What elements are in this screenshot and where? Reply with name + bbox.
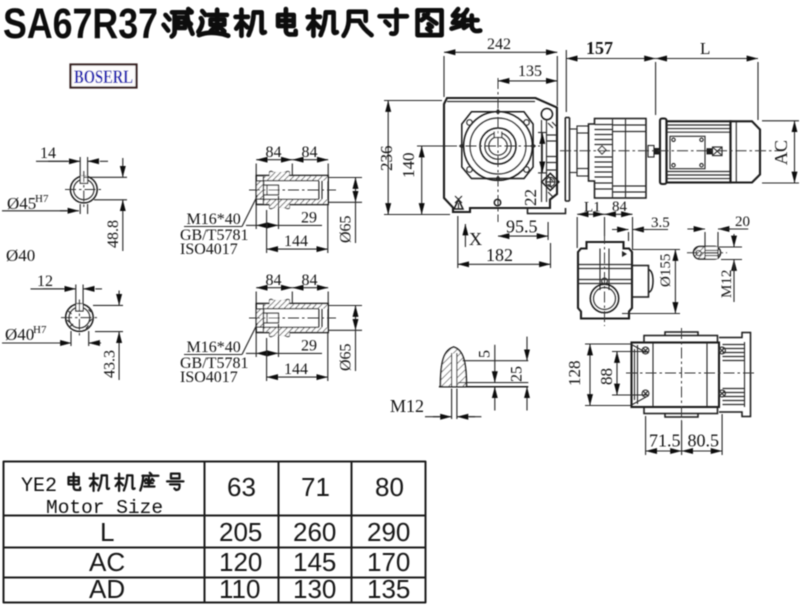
svg-text:YE2: YE2 — [21, 475, 57, 498]
svg-text:48.8: 48.8 — [105, 220, 122, 248]
svg-text:14: 14 — [40, 145, 56, 162]
svg-text:290: 290 — [367, 517, 410, 547]
svg-text:84: 84 — [612, 199, 628, 215]
svg-text:140: 140 — [399, 153, 418, 179]
svg-text:71.5: 71.5 — [649, 431, 681, 451]
svg-text:95.5: 95.5 — [506, 217, 538, 237]
svg-text:260: 260 — [293, 517, 336, 547]
svg-text:128: 128 — [565, 361, 584, 387]
svg-text:29: 29 — [301, 210, 317, 227]
svg-text:BOSERL: BOSERL — [74, 67, 133, 88]
svg-text:X: X — [469, 229, 482, 249]
svg-text:71: 71 — [301, 472, 330, 502]
svg-text:25: 25 — [509, 366, 526, 382]
svg-text:88: 88 — [597, 368, 616, 385]
svg-text:12: 12 — [37, 273, 53, 290]
svg-text:120: 120 — [219, 547, 262, 577]
svg-text:80.5: 80.5 — [688, 431, 720, 451]
svg-text:5: 5 — [477, 350, 494, 358]
svg-text:20: 20 — [735, 214, 750, 230]
svg-text:M16*40: M16*40 — [187, 211, 241, 228]
svg-text:135: 135 — [367, 574, 410, 604]
svg-text:H7: H7 — [35, 193, 49, 205]
svg-text:205: 205 — [219, 517, 262, 547]
svg-text:L1: L1 — [584, 200, 601, 216]
svg-text:84: 84 — [302, 144, 318, 161]
svg-text:43.3: 43.3 — [102, 350, 119, 378]
svg-text:L: L — [700, 39, 710, 58]
svg-text:AC: AC — [771, 140, 791, 165]
svg-text:236: 236 — [377, 146, 396, 172]
svg-text:144: 144 — [284, 233, 308, 250]
svg-text:157: 157 — [586, 38, 613, 58]
svg-text:84: 84 — [266, 144, 282, 161]
svg-text:SA67R37: SA67R37 — [3, 0, 158, 48]
svg-text:Ø40: Ø40 — [6, 246, 35, 265]
svg-text:M12: M12 — [390, 396, 424, 416]
svg-text:AC: AC — [89, 547, 125, 577]
svg-text:63: 63 — [227, 472, 256, 502]
svg-text:Ø40: Ø40 — [5, 325, 34, 344]
svg-text:170: 170 — [367, 547, 410, 577]
svg-text:ISO4017: ISO4017 — [180, 241, 238, 258]
svg-text:Ø45: Ø45 — [7, 194, 36, 213]
svg-text:H7: H7 — [33, 324, 47, 336]
svg-text:3.5: 3.5 — [651, 215, 670, 231]
svg-text:L: L — [100, 517, 114, 547]
svg-text:242: 242 — [487, 36, 511, 53]
svg-text:110: 110 — [219, 574, 260, 604]
svg-text:145: 145 — [293, 547, 336, 577]
svg-text:M12: M12 — [719, 270, 735, 298]
svg-text:182: 182 — [486, 245, 513, 265]
svg-text:Motor Size: Motor Size — [46, 497, 163, 519]
svg-text:Ø155: Ø155 — [658, 254, 674, 287]
svg-text:22: 22 — [521, 189, 540, 206]
svg-text:130: 130 — [293, 574, 336, 604]
svg-text:135: 135 — [518, 63, 542, 80]
svg-text:80: 80 — [375, 472, 404, 502]
svg-text:AD: AD — [89, 574, 125, 604]
svg-text:Ø65: Ø65 — [338, 215, 355, 243]
